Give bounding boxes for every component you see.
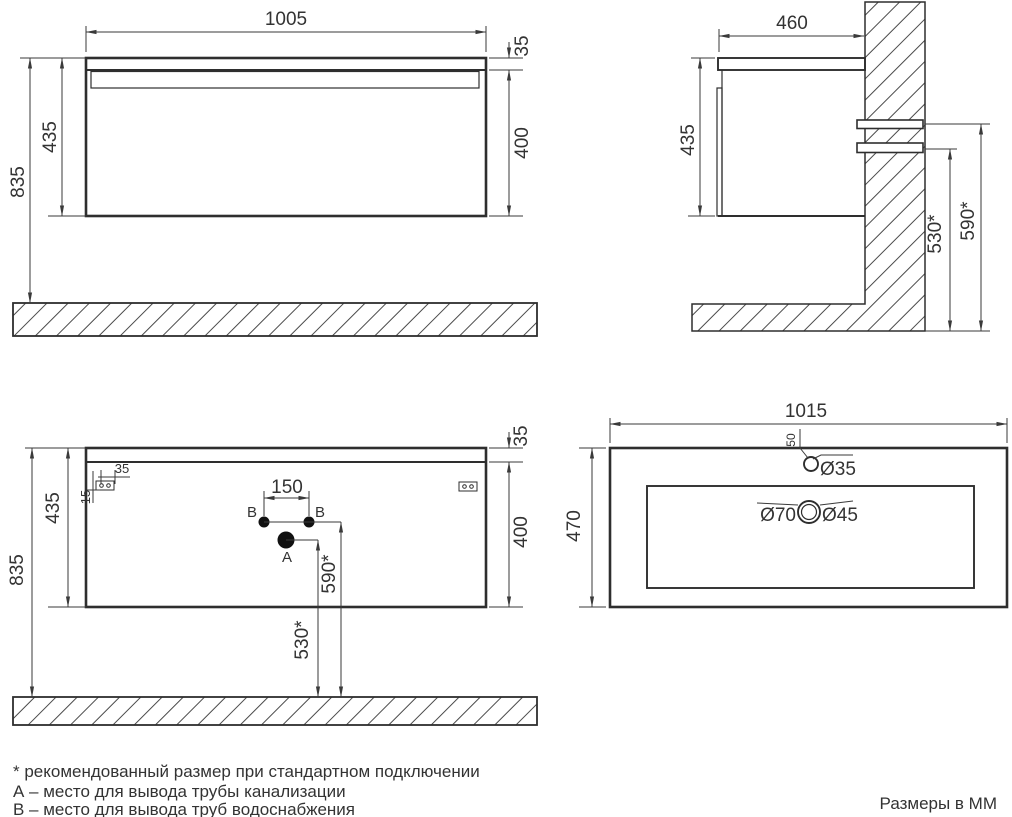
dim-front-height-400: 400	[512, 127, 533, 159]
dim-back-height-400: 400	[511, 516, 532, 548]
label-supply-right: B	[315, 504, 325, 521]
back-view: 835 435 35 400 35 15 150 B B A 590* 530*	[7, 425, 537, 725]
label-drain: A	[282, 549, 292, 566]
front-drawer-groove	[91, 72, 479, 89]
supply-pipe	[857, 120, 923, 129]
installation-drawing: 1005 35 400 435 835 460 435 530* 590*	[0, 0, 1012, 817]
dim-back-cabinet-height: 435	[43, 492, 64, 524]
drain-hole-inner	[802, 505, 817, 520]
dim-supply-spacing: 150	[271, 477, 303, 498]
dim-top-width: 1015	[785, 401, 827, 422]
side-countertop	[718, 58, 865, 70]
units-label: Размеры в ММ	[880, 794, 997, 813]
dim-side-depth: 460	[776, 13, 808, 34]
dim-front-cabinet-height: 435	[40, 121, 61, 153]
note-asterisk: * рекомендованный размер при стандартном…	[13, 762, 480, 781]
technical-drawing-svg: 1005 35 400 435 835 460 435 530* 590*	[0, 0, 1012, 817]
dim-bracket-offset: 15	[78, 490, 93, 504]
dim-back-supply-height: 590*	[319, 554, 340, 594]
side-door-panel	[717, 88, 722, 216]
side-view: 460 435 530* 590*	[678, 2, 990, 331]
mount-bracket-right	[459, 482, 477, 491]
label-supply-left: B	[247, 504, 257, 521]
dim-faucet-offset: 50	[784, 433, 798, 447]
back-floor	[13, 697, 537, 725]
drain-pipe	[857, 143, 923, 153]
front-floor	[13, 303, 537, 336]
dim-top-depth: 470	[564, 510, 585, 542]
dim-back-drain-height: 530*	[292, 620, 313, 660]
dim-back-top-thickness: 35	[511, 425, 532, 446]
label-faucet-diameter: Ø35	[820, 459, 856, 480]
top-view: 1015 470 50 Ø35 Ø70 Ø45	[564, 401, 1007, 607]
dim-back-mount-height: 835	[7, 554, 28, 586]
dim-front-top-thickness: 35	[512, 35, 533, 56]
note-drain-a: А – место для вывода трубы канализации	[13, 782, 346, 801]
front-cabinet-outline	[86, 58, 486, 216]
countertop-outline	[610, 448, 1007, 607]
label-drain-inner-diameter: Ø45	[822, 505, 858, 526]
mount-bracket-left	[96, 481, 114, 490]
faucet-hole	[804, 457, 818, 471]
front-dimensions	[20, 26, 523, 303]
wall-and-floor	[692, 2, 925, 331]
label-drain-outer-diameter: Ø70	[760, 505, 796, 526]
side-dimensions	[688, 29, 990, 331]
back-cabinet-outline	[86, 448, 486, 607]
dim-side-cabinet-height: 435	[678, 124, 699, 156]
note-supply-b: B – место для вывода труб водоснабжения	[13, 800, 355, 817]
back-dimensions	[25, 432, 523, 697]
front-view: 1005 35 400 435 835	[8, 9, 537, 336]
footnotes: * рекомендованный размер при стандартном…	[13, 762, 997, 817]
dim-side-drain-height: 530*	[925, 214, 946, 254]
dim-front-mount-height: 835	[8, 166, 29, 198]
dim-side-supply-height: 590*	[958, 201, 979, 241]
dim-front-width: 1005	[265, 9, 307, 30]
dim-bracket-width: 35	[115, 461, 129, 476]
